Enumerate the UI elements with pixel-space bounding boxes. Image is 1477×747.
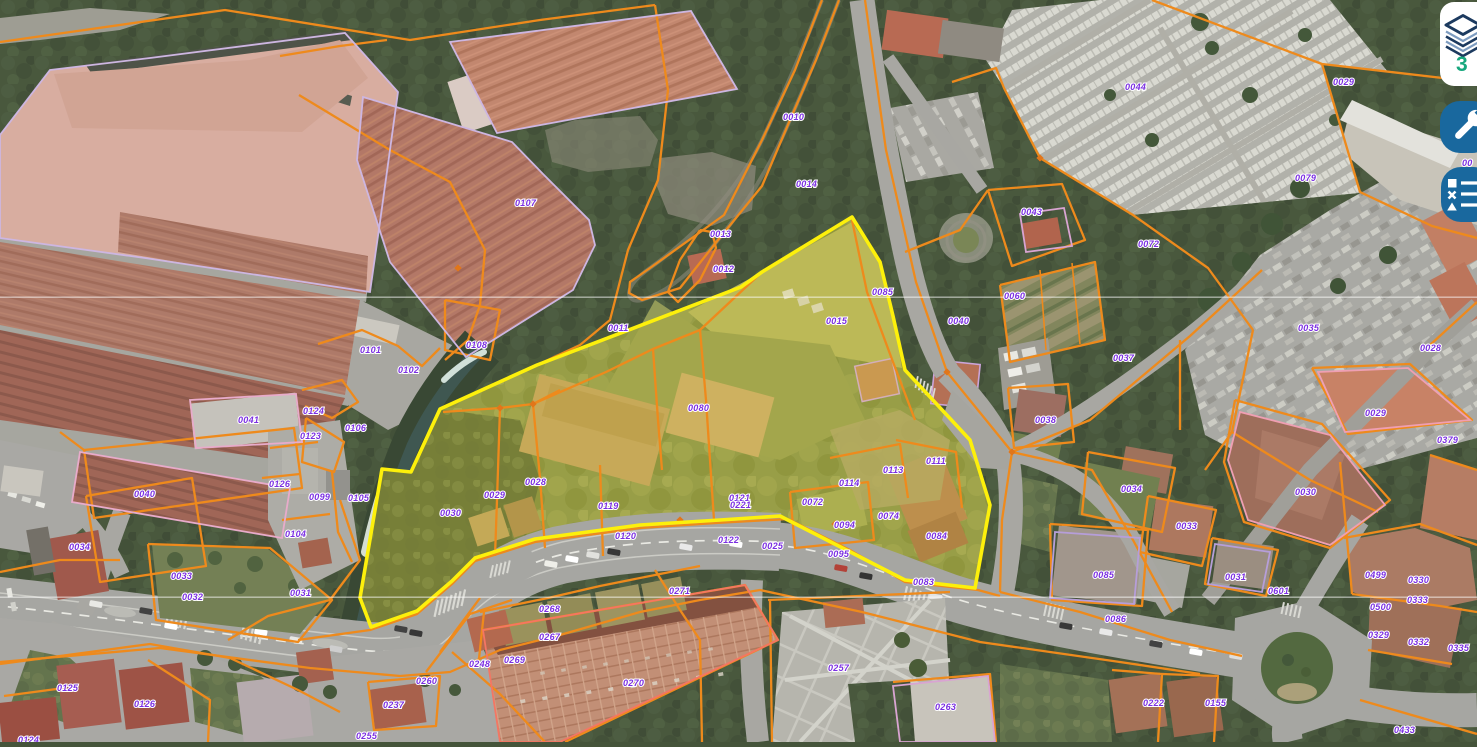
- svg-text:0072: 0072: [802, 497, 823, 507]
- svg-text:0040: 0040: [948, 316, 969, 326]
- svg-text:0222: 0222: [1143, 698, 1164, 708]
- svg-text:0119: 0119: [598, 501, 619, 511]
- svg-text:0248: 0248: [469, 659, 490, 669]
- svg-text:0014: 0014: [796, 179, 817, 189]
- svg-text:0028: 0028: [525, 477, 546, 487]
- svg-text:0029: 0029: [484, 490, 505, 500]
- svg-text:0270: 0270: [623, 678, 644, 688]
- svg-text:0329: 0329: [1368, 630, 1389, 640]
- svg-text:0099: 0099: [309, 492, 330, 502]
- svg-text:0028: 0028: [1420, 343, 1441, 353]
- svg-text:0330: 0330: [1408, 575, 1429, 585]
- svg-text:0106: 0106: [345, 423, 367, 433]
- svg-text:0237: 0237: [383, 700, 405, 710]
- svg-text:0124: 0124: [303, 406, 324, 416]
- svg-text:0080: 0080: [688, 403, 709, 413]
- svg-text:0040: 0040: [134, 489, 155, 499]
- svg-text:0263: 0263: [935, 702, 956, 712]
- svg-text:0084: 0084: [926, 531, 947, 541]
- svg-text:0034: 0034: [69, 542, 90, 552]
- svg-text:0038: 0038: [1035, 415, 1056, 425]
- svg-text:0037: 0037: [1113, 353, 1135, 363]
- svg-text:0155: 0155: [1205, 698, 1227, 708]
- svg-text:0083: 0083: [913, 577, 934, 587]
- svg-text:0015: 0015: [826, 316, 848, 326]
- svg-text:0101: 0101: [360, 345, 381, 355]
- svg-text:0268: 0268: [539, 604, 560, 614]
- svg-text:0085: 0085: [1093, 570, 1115, 580]
- svg-text:0500: 0500: [1370, 602, 1391, 612]
- svg-text:0043: 0043: [1021, 207, 1042, 217]
- svg-text:0107: 0107: [515, 198, 537, 208]
- svg-text:0085: 0085: [872, 287, 894, 297]
- svg-text:0271: 0271: [669, 586, 690, 596]
- svg-text:0113: 0113: [883, 465, 904, 475]
- svg-text:0094: 0094: [834, 520, 855, 530]
- svg-text:0124: 0124: [18, 735, 39, 742]
- svg-text:0034: 0034: [1121, 484, 1142, 494]
- svg-text:0013: 0013: [710, 229, 731, 239]
- svg-text:0333: 0333: [1407, 595, 1428, 605]
- svg-text:0126: 0126: [134, 699, 156, 709]
- svg-text:0257: 0257: [828, 663, 850, 673]
- svg-text:0120: 0120: [615, 531, 636, 541]
- svg-text:0086: 0086: [1105, 614, 1127, 624]
- svg-text:0025: 0025: [762, 541, 784, 551]
- svg-text:0104: 0104: [285, 529, 306, 539]
- svg-text:0033: 0033: [1176, 521, 1197, 531]
- svg-text:0260: 0260: [416, 676, 437, 686]
- svg-text:0105: 0105: [348, 493, 370, 503]
- svg-text:00: 00: [1462, 158, 1473, 168]
- svg-text:0011: 0011: [608, 323, 629, 333]
- svg-text:0122: 0122: [718, 535, 739, 545]
- svg-text:0108: 0108: [466, 340, 487, 350]
- svg-text:0332: 0332: [1408, 637, 1429, 647]
- svg-text:0030: 0030: [440, 508, 461, 518]
- svg-text:0126: 0126: [269, 479, 291, 489]
- svg-text:0030: 0030: [1295, 487, 1316, 497]
- svg-text:0379: 0379: [1437, 435, 1458, 445]
- svg-text:0255: 0255: [356, 731, 378, 741]
- svg-text:0029: 0029: [1365, 408, 1386, 418]
- svg-text:0499: 0499: [1365, 570, 1386, 580]
- svg-text:0032: 0032: [182, 592, 203, 602]
- svg-text:0123: 0123: [300, 431, 321, 441]
- svg-text:0074: 0074: [878, 511, 899, 521]
- svg-text:0125: 0125: [57, 683, 79, 693]
- svg-text:0269: 0269: [504, 655, 525, 665]
- svg-text:0031: 0031: [290, 588, 311, 598]
- svg-text:0035: 0035: [1298, 323, 1320, 333]
- svg-text:0433: 0433: [1394, 725, 1415, 735]
- svg-text:0031: 0031: [1225, 572, 1246, 582]
- svg-text:0221: 0221: [730, 500, 751, 510]
- svg-text:0601: 0601: [1268, 586, 1289, 596]
- svg-text:0267: 0267: [539, 632, 561, 642]
- svg-text:0010: 0010: [783, 112, 804, 122]
- svg-text:0012: 0012: [713, 264, 734, 274]
- svg-text:0044: 0044: [1125, 82, 1146, 92]
- svg-text:0079: 0079: [1295, 173, 1316, 183]
- svg-text:0029: 0029: [1333, 77, 1354, 87]
- svg-text:0111: 0111: [926, 456, 946, 466]
- svg-text:0114: 0114: [839, 478, 860, 488]
- svg-text:0041: 0041: [238, 415, 259, 425]
- svg-text:0335: 0335: [1448, 643, 1470, 653]
- svg-text:0033: 0033: [171, 571, 192, 581]
- svg-text:0060: 0060: [1004, 291, 1025, 301]
- svg-text:0102: 0102: [398, 365, 419, 375]
- svg-text:0072: 0072: [1138, 239, 1159, 249]
- svg-text:0095: 0095: [828, 549, 850, 559]
- svg-text:3: 3: [1456, 53, 1468, 76]
